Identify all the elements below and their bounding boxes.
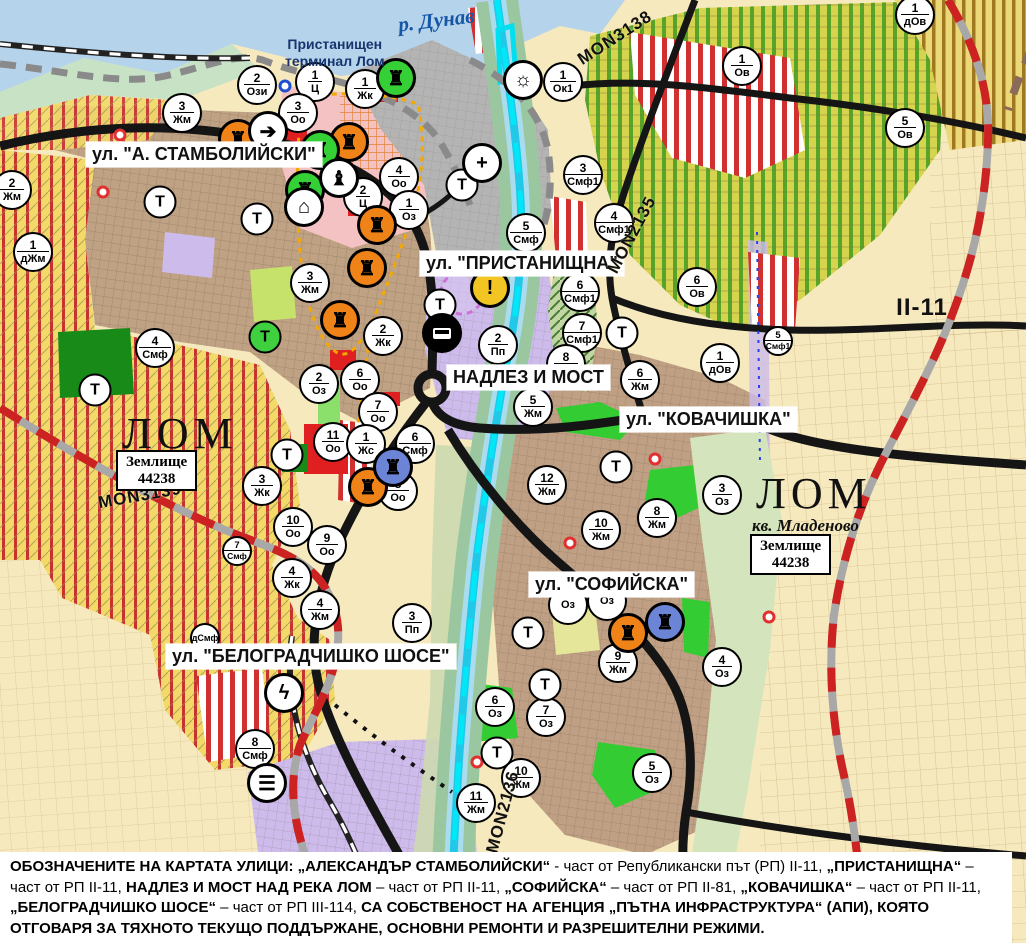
terminal-label: Пристанищен терминал Лом [285, 36, 385, 70]
road-number-label: MON3138 [574, 7, 656, 70]
point-marker [279, 80, 292, 93]
zone-marker: 6Жм [620, 360, 660, 400]
t-marker: Т [600, 451, 633, 484]
footer-text-run: НАДЛЕЗ И МОСТ НАД РЕКА ЛОМ [126, 879, 372, 896]
zone-marker: 6Ов [677, 267, 717, 307]
t-marker: Т [271, 439, 304, 472]
zone-marker: 12Жм [527, 465, 567, 505]
zone-marker: 5Ов [885, 108, 925, 148]
t-marker: Т [79, 374, 112, 407]
zone-marker: 4Жм [300, 590, 340, 630]
footer-text-run: - част от Републикански път (РП) II-11, [550, 858, 826, 875]
zone-marker: 1Ов [722, 46, 762, 86]
t-marker: Т [144, 186, 177, 219]
point-marker [564, 537, 577, 550]
bus-station-icon [422, 313, 462, 353]
zone-marker: 7Оз [526, 697, 566, 737]
street-label: ул. "БЕЛОГРАДЧИШКО ШОСЕ" [166, 644, 456, 669]
point-marker [114, 129, 127, 142]
zone-marker: 1Ок1 [543, 62, 583, 102]
zone-marker: 6Смф1 [560, 272, 600, 312]
footer-text-run: – част от РП II-11, [372, 879, 505, 896]
industry-icon: ♜ [608, 613, 648, 653]
land-register-box: Землище 44238 [116, 450, 197, 491]
road-number-label: II-11 [896, 294, 948, 322]
zone-marker: 7Смф [222, 536, 252, 566]
zone-marker: 2Оз [299, 364, 339, 404]
quarter-name-label: кв. Младеново [752, 516, 859, 536]
industry-icon-blue: ♜ [373, 447, 413, 487]
zone-marker: 3Смф1 [563, 155, 603, 195]
rail-station-icon: ☰ [247, 763, 287, 803]
street-label: НАДЛЕЗ И МОСТ [447, 365, 610, 390]
power-icon: ϟ [264, 673, 304, 713]
t-marker: Т [606, 317, 639, 350]
zone-marker: 11Жм [456, 783, 496, 823]
zone-marker: 10Жм [581, 510, 621, 550]
hospital-icon: + [462, 143, 502, 183]
zone-marker: 1дОв [700, 343, 740, 383]
zone-marker: 6Оз [475, 687, 515, 727]
street-label: ул. "А. СТАМБОЛИЙСКИ" [86, 142, 322, 167]
footer-text-run: – част от РП II-81, [607, 879, 741, 896]
t-marker: Т [249, 321, 282, 354]
city-name-label: ЛОМ [756, 472, 872, 516]
point-marker [763, 611, 776, 624]
footer-text-run: „БЕЛОГРАДЧИШКО ШОСЕ“ [10, 899, 216, 916]
monument-icon: ♝ [319, 158, 359, 198]
zone-marker: 5Жм [513, 387, 553, 427]
zone-marker: 8Жм [637, 498, 677, 538]
zone-marker: 4Жк [272, 558, 312, 598]
zone-marker: 2Ози [237, 65, 277, 105]
zone-marker: 4Смф [135, 328, 175, 368]
marker-layer: 2Ози1Ц3Оо1Жк1Ок13Жм2Жм1дЖм4Оо2Ц1Оз3Смф15… [0, 0, 1026, 943]
t-marker: Т [529, 669, 562, 702]
zone-marker: 2Жк [363, 316, 403, 356]
zone-marker: 5Смф1 [763, 326, 793, 356]
footer-note: ОБОЗНАЧЕНИТЕ НА КАРТАТА УЛИЦИ: „АЛЕКСАНД… [0, 852, 1012, 943]
zone-marker: 5Оз [632, 753, 672, 793]
industry-icon: ♜ [347, 248, 387, 288]
river-label: р. Дунав [397, 3, 476, 37]
industry-icon: ♜ [357, 205, 397, 245]
point-marker [649, 453, 662, 466]
zone-marker: 2Жм [0, 170, 32, 210]
t-marker: Т [481, 737, 514, 770]
zone-marker: 3Жм [290, 263, 330, 303]
zone-marker: 3Оз [702, 475, 742, 515]
point-marker [97, 186, 110, 199]
footer-text-run: ОБОЗНАЧЕНИТЕ НА КАРТАТА УЛИЦИ: „АЛЕКСАНД… [10, 858, 550, 875]
street-label: ул. "ПРИСТАНИЩНА" [420, 251, 624, 276]
zone-marker: 9Оо [307, 525, 347, 565]
zone-marker: 4Оз [702, 647, 742, 687]
industry-icon-blue: ♜ [645, 602, 685, 642]
zone-marker: 3Пп [392, 603, 432, 643]
arch-icon: ⌂ [284, 187, 324, 227]
zone-marker: 1дОв [895, 0, 935, 35]
street-label: ул. "СОФИЙСКА" [529, 572, 694, 597]
t-marker: Т [241, 203, 274, 236]
zone-marker: 3Жм [162, 93, 202, 133]
land-register-box: Землище 44238 [750, 534, 831, 575]
street-label: ул. "КОВАЧИШКА" [620, 407, 797, 432]
industry-icon: ♜ [320, 300, 360, 340]
zone-marker: 3Жк [242, 466, 282, 506]
zone-marker: 5Смф [506, 213, 546, 253]
footer-text-run: „КОВАЧИШКА“ [740, 879, 852, 896]
zone-marker: 1дЖм [13, 232, 53, 272]
sun-port-icon: ☼ [503, 60, 543, 100]
footer-text-run: – част от РП II-11, [852, 879, 980, 896]
footer-text-run: – част от РП III-114, [216, 899, 361, 916]
map-canvas: 2Ози1Ц3Оо1Жк1Ок13Жм2Жм1дЖм4Оо2Ц1Оз3Смф15… [0, 0, 1026, 943]
bus-glyph [433, 328, 451, 339]
footer-text-run: „СОФИЙСКА“ [504, 879, 606, 896]
footer-text-run: „ПРИСТАНИЩНА“ [827, 858, 962, 875]
t-marker: Т [512, 617, 545, 650]
zone-marker: 2Пп [478, 325, 518, 365]
